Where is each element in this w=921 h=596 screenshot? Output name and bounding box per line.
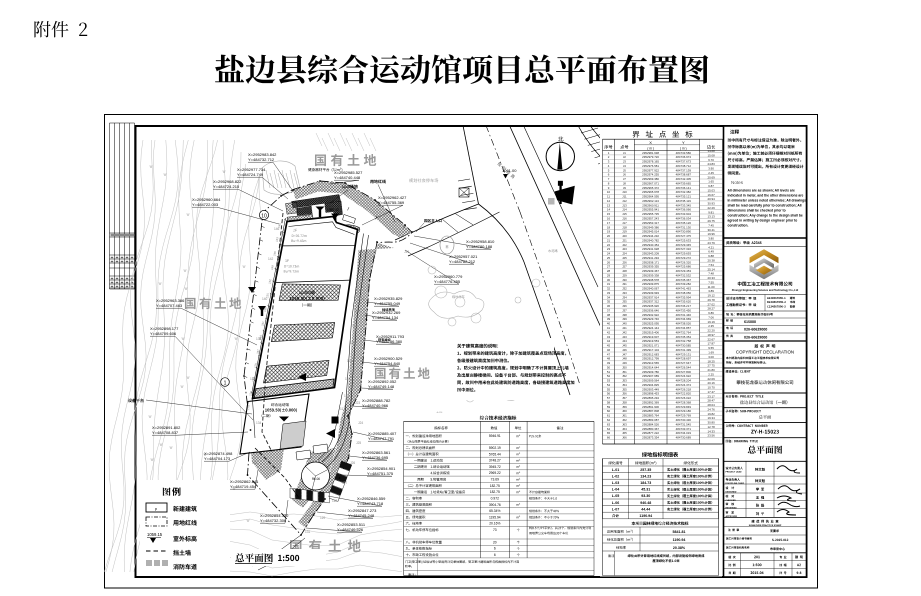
svg-text:14.68: 14.68 — [707, 149, 715, 153]
svg-text:2952912.683: 2952912.683 — [642, 352, 659, 356]
svg-text:J63: J63 — [622, 422, 627, 426]
svg-text:60: 60 — [607, 409, 611, 413]
svg-text:484730.689: 484730.689 — [676, 436, 692, 440]
svg-text:484722.820: 484722.820 — [676, 392, 692, 396]
svg-text:484732.532: 484732.532 — [676, 273, 692, 277]
svg-text:J8: J8 — [623, 181, 626, 185]
svg-text:112: 112 — [352, 324, 357, 328]
svg-text:16: 16 — [607, 217, 611, 221]
svg-text:10.70: 10.70 — [707, 386, 715, 390]
svg-text:52: 52 — [607, 374, 611, 378]
svg-text:2952977.922: 2952977.922 — [642, 168, 659, 172]
svg-text:APPROVED: APPROVED — [726, 515, 738, 518]
svg-text:2952940.454: 2952940.454 — [642, 243, 659, 247]
svg-text:484727.475: 484727.475 — [676, 234, 692, 238]
svg-text:65.34%: 65.34% — [489, 509, 500, 513]
svg-text:484729.186: 484729.186 — [676, 409, 692, 413]
svg-text:27.75: 27.75 — [707, 364, 715, 368]
svg-text:J19: J19 — [622, 230, 627, 234]
svg-text:484729.272: 484729.272 — [676, 256, 692, 260]
svg-text:2952921.071: 2952921.071 — [642, 344, 659, 348]
svg-text:46: 46 — [607, 348, 611, 352]
svg-text:37: 37 — [607, 309, 611, 313]
svg-text:2952895.294: 2952895.294 — [642, 396, 659, 400]
svg-text:Y=484754.134: Y=484754.134 — [372, 315, 399, 320]
svg-text:J27: J27 — [622, 265, 627, 269]
svg-text:484734.969: 484734.969 — [676, 317, 692, 321]
svg-text:J26: J26 — [350, 461, 355, 465]
svg-text:57: 57 — [607, 396, 611, 400]
svg-text:16.67: 16.67 — [707, 193, 715, 197]
svg-text:2952924.144: 2952924.144 — [642, 326, 659, 330]
svg-text:1059.40: 1059.40 — [327, 208, 339, 212]
svg-text:161: 161 — [260, 320, 265, 326]
svg-text:2952877.222: 2952877.222 — [642, 431, 659, 435]
svg-text:2952940.067: 2952940.067 — [642, 287, 659, 291]
svg-text:21.80: 21.80 — [707, 368, 715, 372]
svg-text:22.29: 22.29 — [707, 206, 715, 210]
svg-text:J14: J14 — [622, 208, 627, 212]
svg-text:2952883.764: 2952883.764 — [642, 414, 659, 418]
svg-text:2952944.232: 2952944.232 — [642, 234, 659, 238]
svg-text:L-07: L-07 — [612, 507, 619, 511]
svg-text:44: 44 — [607, 339, 611, 343]
svg-text:Y=484707.463: Y=484707.463 — [156, 303, 183, 308]
svg-text:Y=484724.215: Y=484724.215 — [213, 184, 240, 189]
svg-text:2952943.209: 2952943.209 — [642, 252, 659, 256]
svg-text:62: 62 — [607, 418, 611, 422]
svg-text:2952937.914: 2952937.914 — [642, 295, 659, 299]
svg-text:484736.217: 484736.217 — [676, 304, 692, 308]
svg-text:20.69: 20.69 — [707, 175, 715, 179]
svg-text:484726.320: 484726.320 — [676, 260, 692, 264]
svg-text:3748.27: 3748.27 — [489, 459, 501, 463]
svg-text:5841.81: 5841.81 — [673, 530, 686, 534]
svg-text:2952903.449: 2952903.449 — [642, 387, 659, 391]
svg-text:J31: J31 — [622, 282, 627, 286]
svg-text:18.97: 18.97 — [707, 333, 715, 337]
svg-text:47: 47 — [607, 352, 611, 356]
svg-text:J10: J10 — [622, 190, 627, 194]
svg-text:20: 20 — [493, 540, 497, 544]
svg-text:0.972: 0.972 — [491, 497, 499, 501]
svg-text:5765.44: 5765.44 — [489, 452, 501, 456]
svg-text:Y=484776.455: Y=484776.455 — [434, 279, 461, 284]
svg-text:128: 128 — [332, 499, 338, 503]
svg-text:484726.218: 484726.218 — [676, 387, 692, 391]
svg-text:2952974.255: 2952974.255 — [642, 173, 659, 177]
svg-text:146: 146 — [272, 250, 277, 256]
svg-text:2952964.595: 2952964.595 — [642, 195, 659, 199]
svg-text:J44: J44 — [622, 339, 627, 343]
svg-text:10: 10 — [261, 213, 267, 219]
svg-text:2952967.071: 2952967.071 — [642, 181, 659, 185]
svg-text:Y=484751.375: Y=484751.375 — [367, 471, 394, 476]
svg-text:484735.126: 484735.126 — [676, 221, 692, 225]
svg-text:2952936.646: 2952936.646 — [642, 309, 659, 313]
svg-text:J23: J23 — [355, 401, 360, 405]
svg-text:45: 45 — [607, 344, 611, 348]
svg-text:2952919.553: 2952919.553 — [642, 339, 659, 343]
svg-text:484728.204: 484728.204 — [676, 379, 692, 383]
svg-text:2952945.014: 2952945.014 — [642, 230, 659, 234]
svg-text:All dimensions are as shown; A: All dimensions are as shown; All levels … — [728, 189, 795, 193]
svg-text:484730.890: 484730.890 — [676, 230, 692, 234]
svg-text:Y=484745.248: Y=484745.248 — [348, 513, 375, 518]
svg-text:2952965.678: 2952965.678 — [642, 190, 659, 194]
svg-text:J26: J26 — [622, 260, 627, 264]
svg-text:66: 66 — [607, 436, 611, 440]
svg-text:2952914.644: 2952914.644 — [642, 365, 659, 369]
svg-text:2952919.406: 2952919.406 — [642, 330, 659, 334]
svg-text:Y=484709.606: Y=484709.606 — [150, 331, 177, 336]
svg-text:55: 55 — [607, 387, 611, 391]
svg-text:6.49: 6.49 — [708, 250, 714, 254]
svg-text:17.87: 17.87 — [707, 342, 715, 346]
svg-text:13: 13 — [607, 203, 611, 207]
svg-text:14: 14 — [607, 208, 611, 212]
svg-text:J24: J24 — [358, 421, 363, 425]
svg-text:L-02: L-02 — [612, 474, 619, 478]
svg-text:Notes: Notes — [731, 180, 744, 185]
svg-text:2952939.875: 2952939.875 — [642, 282, 659, 286]
svg-text:2952935.926: 2952935.926 — [642, 304, 659, 308]
svg-text:61: 61 — [607, 414, 611, 418]
svg-text:L-03: L-03 — [612, 481, 619, 485]
svg-text:23.79: 23.79 — [707, 241, 715, 245]
svg-text:19.19: 19.19 — [707, 320, 715, 324]
svg-text:20.38%: 20.38% — [673, 546, 686, 550]
svg-text:484739.665: 484739.665 — [676, 181, 692, 185]
svg-text:26: 26 — [607, 260, 611, 264]
svg-text:indicated in meter, and the ot: indicated in meter, and the other dimens… — [728, 194, 804, 198]
svg-text:45.31: 45.31 — [641, 488, 650, 492]
svg-text:113: 113 — [350, 341, 355, 345]
svg-text:1: 1 — [224, 380, 227, 386]
svg-text:L-05: L-05 — [612, 494, 619, 498]
svg-text:J4: J4 — [623, 164, 626, 168]
svg-text:Y=484732.306: Y=484732.306 — [260, 518, 287, 523]
svg-text:2952981.638: 2952981.638 — [642, 151, 659, 155]
svg-text:29.78: 29.78 — [707, 298, 715, 302]
svg-text:484731.545: 484731.545 — [676, 422, 692, 426]
svg-text:5946.91: 5946.91 — [489, 434, 501, 438]
svg-text:484737.673: 484737.673 — [676, 160, 692, 164]
svg-text:152: 152 — [268, 278, 273, 284]
svg-text:J13: J13 — [622, 203, 627, 207]
svg-text:agreed in writing by design en: agreed in writing by design engineer pri… — [728, 219, 798, 223]
svg-text:2952955.941: 2952955.941 — [642, 208, 659, 212]
svg-text:( m ): ( m ) — [680, 146, 687, 150]
svg-text:2952917.104: 2952917.104 — [642, 348, 659, 352]
svg-text:484733.904: 484733.904 — [676, 212, 692, 216]
svg-text:J52: J52 — [622, 374, 627, 378]
svg-text:Y=484740.966: Y=484740.966 — [362, 403, 389, 408]
svg-text:J47: J47 — [622, 352, 627, 356]
svg-text:484727.800: 484727.800 — [676, 370, 692, 374]
svg-text:J65: J65 — [622, 431, 627, 435]
svg-text:20.94: 20.94 — [707, 197, 715, 201]
svg-text:484734.857: 484734.857 — [676, 326, 692, 330]
svg-text:19.34: 19.34 — [707, 416, 715, 420]
svg-text:27.02: 27.02 — [707, 302, 715, 306]
svg-text:J51: J51 — [622, 370, 627, 374]
svg-text:Y=484722.003: Y=484722.003 — [192, 202, 219, 207]
svg-text:DESIGNED: DESIGNED — [726, 492, 737, 494]
svg-text:484729.131: 484729.131 — [676, 352, 692, 356]
svg-text:484735.367: 484735.367 — [676, 278, 692, 282]
svg-text:J40: J40 — [622, 322, 627, 326]
svg-text:17.47: 17.47 — [707, 390, 715, 394]
svg-text:484739.282: 484739.282 — [676, 282, 692, 286]
svg-text:2952960.911: 2952960.911 — [642, 203, 659, 207]
svg-text:2952939.355: 2952939.355 — [642, 265, 659, 269]
svg-text:484729.345: 484729.345 — [676, 243, 692, 247]
svg-text:Y=484736.695: Y=484736.695 — [362, 455, 389, 460]
svg-text:2952938.171: 2952938.171 — [642, 260, 659, 264]
svg-text:J36: J36 — [622, 304, 627, 308]
svg-text:36: 36 — [607, 304, 611, 308]
svg-text:257.35: 257.35 — [640, 468, 651, 472]
svg-text:2952976.581: 2952976.581 — [642, 164, 659, 168]
svg-text:J19: J19 — [404, 250, 409, 254]
svg-text:J30: J30 — [622, 278, 627, 282]
svg-text:484735.121: 484735.121 — [676, 195, 692, 199]
svg-text:19.96: 19.96 — [707, 232, 715, 236]
svg-text:J37: J37 — [622, 309, 627, 313]
svg-text:484729.693: 484729.693 — [676, 252, 692, 256]
svg-text:24.83: 24.83 — [707, 162, 715, 166]
svg-text:132: 132 — [252, 461, 258, 465]
svg-text:115: 115 — [345, 377, 350, 381]
svg-text:3945.72: 3945.72 — [489, 465, 501, 469]
svg-text:1190.94: 1190.94 — [673, 538, 686, 542]
svg-text:2952925.095: 2952925.095 — [642, 322, 659, 326]
svg-text:CHECKED: CHECKED — [726, 500, 737, 502]
svg-text:13.13: 13.13 — [707, 215, 715, 219]
svg-text:39: 39 — [607, 317, 611, 321]
svg-text:17: 17 — [607, 221, 611, 225]
svg-text:142: 142 — [268, 257, 274, 261]
svg-text:7.54: 7.54 — [708, 263, 714, 267]
svg-text:73.69: 73.69 — [491, 478, 499, 482]
svg-text:44.44: 44.44 — [641, 507, 650, 511]
svg-text:28.47: 28.47 — [707, 399, 715, 403]
svg-text:2952883.087: 2952883.087 — [642, 418, 659, 422]
svg-text:7.55: 7.55 — [708, 280, 714, 284]
svg-text:24.76: 24.76 — [707, 407, 715, 411]
svg-text:114: 114 — [347, 359, 352, 363]
svg-text:484729.769: 484729.769 — [676, 414, 692, 418]
svg-text:111: 111 — [355, 309, 360, 313]
svg-text:SIGNATURE PRACTICE STAMP: SIGNATURE PRACTICE STAMP — [749, 524, 782, 527]
svg-text:134.23: 134.23 — [640, 474, 651, 478]
svg-text:2952873.354: 2952873.354 — [642, 436, 659, 440]
svg-text:15.08: 15.08 — [707, 153, 715, 157]
svg-text:20: 20 — [607, 234, 611, 238]
svg-text:dimensions shall be checked pr: dimensions shall be checked prior to — [728, 209, 786, 213]
svg-text:J49: J49 — [622, 361, 627, 365]
svg-text:23.56: 23.56 — [707, 434, 715, 438]
svg-text:30.41: 30.41 — [707, 228, 715, 232]
svg-text:J24: J24 — [622, 252, 627, 256]
svg-text:20.33: 20.33 — [707, 276, 715, 280]
svg-text:Y=484754.840: Y=484754.840 — [374, 361, 401, 366]
svg-text:940.48: 940.48 — [640, 501, 651, 505]
svg-text:J25: J25 — [356, 441, 361, 445]
svg-text:J1: J1 — [623, 151, 626, 155]
svg-text:J57: J57 — [622, 396, 627, 400]
svg-text:484726.022: 484726.022 — [676, 396, 692, 400]
svg-text:J66: J66 — [622, 436, 627, 440]
svg-text:J6: J6 — [623, 173, 626, 177]
svg-text:24: 24 — [607, 252, 611, 256]
svg-text:2952898.453: 2952898.453 — [642, 392, 659, 396]
svg-text:30.80: 30.80 — [707, 421, 715, 425]
svg-text:J16: J16 — [622, 217, 627, 221]
svg-text:COPYRIGHT DECLARATION: COPYRIGHT DECLARATION — [736, 350, 794, 355]
svg-text:L-06: L-06 — [612, 501, 619, 505]
svg-text:155: 155 — [265, 292, 270, 298]
svg-text:DISCIPLINE CHIEF: DISCIPLINE CHIEF — [726, 483, 745, 485]
svg-text:182.75: 182.75 — [490, 484, 500, 488]
svg-text:484727.647: 484727.647 — [676, 361, 692, 365]
svg-text:484735.994: 484735.994 — [676, 295, 692, 299]
svg-text:J35: J35 — [622, 300, 627, 304]
svg-text:Y=484704.173: Y=484704.173 — [204, 456, 231, 461]
svg-text:3.90: 3.90 — [708, 167, 714, 171]
svg-text:117: 117 — [340, 407, 345, 411]
svg-text:L-01: L-01 — [612, 468, 619, 472]
svg-text:shall be read carefully prior: shall be read carefully prior to constru… — [728, 204, 802, 208]
svg-text:2952965.372: 2952965.372 — [642, 186, 659, 190]
svg-text:PROJECT LEAD: PROJECT LEAD — [726, 471, 743, 474]
svg-text:22: 22 — [607, 243, 611, 247]
svg-text:6: 6 — [494, 553, 496, 557]
svg-text:J21: J21 — [622, 238, 627, 242]
svg-text:2952887.808: 2952887.808 — [642, 409, 659, 413]
svg-text:Y=484755.369: Y=484755.369 — [378, 200, 405, 205]
svg-text:182.75: 182.75 — [490, 490, 500, 494]
svg-text:3.80: 3.80 — [708, 237, 714, 241]
svg-text:2952929.746: 2952929.746 — [642, 317, 659, 321]
svg-text:25: 25 — [607, 256, 611, 260]
svg-text:484738.687: 484738.687 — [676, 173, 692, 177]
svg-text:2952941.294: 2952941.294 — [642, 256, 659, 260]
svg-text:J45: J45 — [622, 344, 627, 348]
svg-text:X: X — [649, 140, 652, 145]
svg-text:Y=484708.837: Y=484708.837 — [152, 430, 179, 435]
svg-text:49: 49 — [607, 361, 611, 365]
svg-text:27: 27 — [607, 265, 611, 269]
svg-text:35: 35 — [607, 300, 611, 304]
svg-text:484733.450: 484733.450 — [676, 309, 692, 313]
svg-text:484730.585: 484730.585 — [676, 344, 692, 348]
svg-text:2952955.735: 2952955.735 — [642, 212, 659, 216]
svg-text:484733.345: 484733.345 — [676, 203, 692, 207]
svg-text:Y=484732.712: Y=484732.712 — [248, 157, 275, 162]
svg-text:53: 53 — [607, 379, 611, 383]
svg-text:2952957.243: 2952957.243 — [642, 217, 659, 221]
svg-text:14.33: 14.33 — [707, 429, 715, 433]
svg-text:Y=484782.212: Y=484782.212 — [449, 259, 476, 264]
svg-text:J32: J32 — [622, 287, 627, 291]
svg-text:( m ): ( m ) — [647, 146, 654, 150]
svg-text:42: 42 — [607, 330, 611, 334]
svg-text:2952953.317: 2952953.317 — [642, 221, 659, 225]
svg-text:J60: J60 — [622, 409, 627, 413]
svg-text:56: 56 — [607, 392, 611, 396]
svg-text:58: 58 — [607, 401, 611, 405]
svg-text:11: 11 — [607, 195, 610, 199]
svg-text:484732.764: 484732.764 — [676, 330, 692, 334]
svg-text:484728.368: 484728.368 — [676, 401, 692, 405]
svg-text:3904.76: 3904.76 — [489, 503, 501, 507]
svg-text:73: 73 — [493, 528, 497, 532]
svg-text:Y=484780.188: Y=484780.188 — [466, 244, 493, 249]
svg-text:2952939.338: 2952939.338 — [642, 273, 659, 277]
svg-text:51: 51 — [607, 370, 611, 374]
svg-text:484737.139: 484737.139 — [676, 168, 692, 172]
svg-text:63: 63 — [607, 422, 611, 426]
svg-text:in millimeter unless noted oth: in millimeter unless noted otherwise; Al… — [728, 199, 807, 203]
svg-text:construction.: construction. — [728, 224, 749, 228]
svg-text:7.48: 7.48 — [708, 272, 714, 276]
svg-text:2952913.565: 2952913.565 — [642, 361, 659, 365]
svg-text:484738.026: 484738.026 — [676, 322, 692, 326]
svg-text:19.12: 19.12 — [707, 294, 715, 298]
svg-text:J34: J34 — [622, 295, 627, 299]
svg-text:J55: J55 — [622, 387, 627, 391]
svg-text:93.30: 93.30 — [641, 494, 650, 498]
svg-text:20.38: 20.38 — [707, 259, 715, 263]
svg-text:23.17: 23.17 — [707, 394, 715, 398]
svg-text:149: 149 — [270, 264, 275, 270]
svg-text:Y=484719.454: Y=484719.454 — [230, 484, 257, 489]
svg-text:484736.066: 484736.066 — [676, 208, 692, 212]
svg-text:construction; Any change to th: construction; Any change to the design s… — [728, 214, 803, 218]
svg-text:6.88: 6.88 — [708, 254, 714, 258]
svg-text:484724.922: 484724.922 — [676, 374, 692, 378]
svg-text:30: 30 — [607, 278, 611, 282]
svg-text:J50: J50 — [622, 365, 627, 369]
svg-text:J41: J41 — [622, 326, 627, 330]
svg-text:484732.382: 484732.382 — [676, 190, 692, 194]
svg-text:1.69: 1.69 — [708, 351, 714, 355]
svg-text:22.20: 22.20 — [707, 329, 715, 333]
svg-text:J46: J46 — [622, 348, 627, 352]
svg-text:484725.686: 484725.686 — [676, 265, 692, 269]
svg-text:484725.633: 484725.633 — [676, 238, 692, 242]
svg-text:1059.15: 1059.15 — [147, 532, 163, 537]
svg-text:9.55: 9.55 — [708, 346, 714, 350]
svg-text:484734.019: 484734.019 — [676, 431, 692, 435]
svg-text:143: 143 — [275, 236, 280, 242]
svg-text:28.27: 28.27 — [707, 307, 715, 311]
svg-text:6.86: 6.86 — [708, 311, 714, 315]
svg-text:484726.544: 484726.544 — [676, 365, 692, 369]
svg-text:134: 134 — [256, 421, 262, 425]
svg-text:22.09: 22.09 — [707, 377, 715, 381]
svg-text:1195.94: 1195.94 — [489, 515, 501, 519]
svg-text:J15: J15 — [622, 212, 627, 216]
svg-text:41: 41 — [607, 326, 611, 330]
svg-text:1190.94: 1190.94 — [639, 514, 652, 518]
svg-text:J11: J11 — [622, 195, 627, 199]
svg-text:158: 158 — [263, 306, 268, 312]
svg-text:Y=484740.448: Y=484740.448 — [334, 175, 361, 180]
svg-text:J42: J42 — [622, 330, 627, 334]
